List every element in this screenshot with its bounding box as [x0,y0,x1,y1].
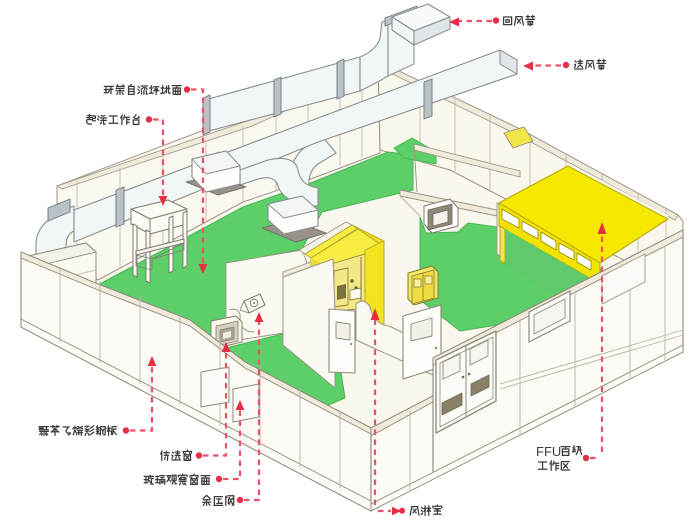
svg-text:FFU: FFU [536,444,561,459]
